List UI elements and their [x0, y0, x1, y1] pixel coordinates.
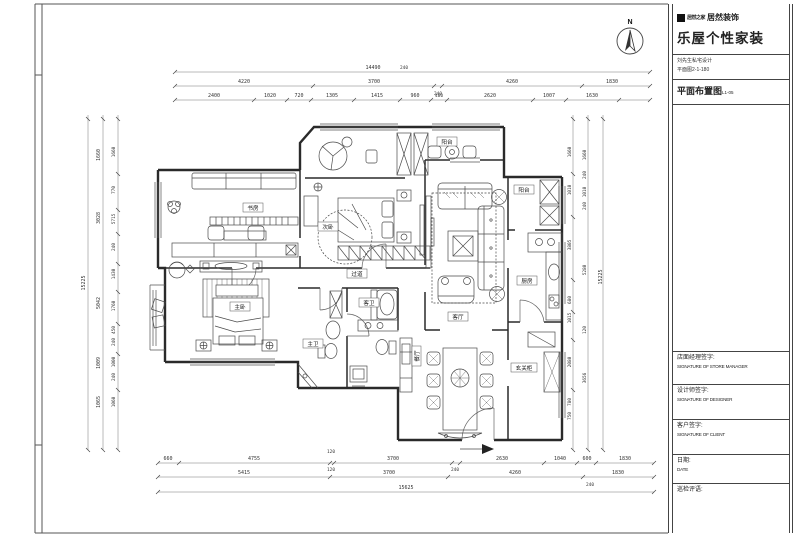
drawing-title-section: 平面布置图L1-05: [673, 80, 789, 105]
dim-texts-bottom: 660 4755 120 120 3700 240 2630 1040 600 …: [163, 449, 631, 491]
bedroom2-tv: [420, 205, 424, 255]
dim-text: 1009: [96, 357, 102, 369]
dim-text: 2080: [567, 356, 573, 367]
signature-client-cn: 客户签字:: [677, 422, 785, 431]
hall-wardrobes: [397, 133, 428, 175]
dim-text: 2400: [208, 93, 220, 99]
room-label-study: 书房: [243, 203, 263, 212]
dim-text: 1415: [371, 93, 383, 99]
outer-walls: [158, 127, 562, 440]
dim-text: 680: [567, 296, 573, 304]
dim-text: 660: [163, 456, 172, 462]
living-sofa-top: [438, 183, 492, 209]
dim-text: 4260: [509, 470, 521, 476]
dim-text: 1065: [96, 396, 102, 408]
drawing-title: 平面布置图: [677, 86, 722, 96]
dim-text: 1010: [582, 186, 588, 197]
dim-text: 240: [111, 373, 117, 381]
dim-texts-left: 15225 1660 3028 5042 1009 1065 1660 770 …: [81, 146, 117, 408]
dim-text: 450: [111, 326, 117, 334]
dim-text: 15625: [398, 485, 413, 491]
dim-text: 14490: [365, 65, 380, 71]
entry-closet: [528, 332, 560, 392]
dining-table: [443, 348, 477, 430]
svg-text:玄关柜: 玄关柜: [516, 364, 533, 372]
living-armchair: [438, 276, 474, 303]
dim-text: 600: [582, 456, 591, 462]
dim-text: 780: [567, 398, 573, 406]
dim-text: 120: [327, 449, 335, 455]
room-label-living: 客厅: [448, 312, 468, 321]
svg-text:餐厅: 餐厅: [413, 350, 421, 362]
project-info-section: 刘先生私宅设计 平面图2-1-180: [673, 55, 789, 80]
drawing-number: L1-05: [722, 90, 734, 95]
svg-text:阳台: 阳台: [518, 186, 530, 194]
dim-text: 1007: [543, 93, 555, 99]
bedroom2-bed: [338, 190, 411, 243]
living-sofa-right: [478, 206, 504, 290]
title-block-empty-area: [673, 105, 789, 352]
signature-client: 客户签字: SIGNATURE OF CLIENT: [673, 420, 789, 455]
svg-text:客卫: 客卫: [363, 299, 375, 307]
dining-sideboard: [400, 338, 412, 392]
brand-logo-icon: [677, 14, 685, 22]
dim-text: 240: [582, 202, 588, 210]
dim-text: 1660: [111, 146, 117, 157]
dim-text: 120: [582, 326, 588, 334]
dim-text: 1010: [567, 184, 573, 195]
dim-text: 1830: [612, 470, 624, 476]
room-label-corridor: 过道: [347, 269, 367, 278]
dim-text: 240: [586, 482, 594, 488]
signature-designer-cn: 设计师签字:: [677, 387, 785, 396]
project-line2: 平面图2-1-180: [677, 66, 785, 75]
dim-text: 1660: [96, 149, 102, 161]
dim-text: 5280: [582, 264, 588, 275]
svg-text:次卧: 次卧: [322, 223, 334, 231]
north-arrow-icon: N: [617, 19, 643, 54]
dim-text: 3028: [96, 212, 102, 224]
study-sofa: [192, 173, 296, 189]
svg-text:阳台: 阳台: [441, 138, 453, 146]
bedroom2-wardrobe: [338, 246, 430, 260]
title-block: 居然之家 居然装饰 乐屋个性家装 刘先生私宅设计 平面图2-1-180 平面布置…: [668, 4, 793, 533]
balcony-south-furniture: [428, 145, 476, 159]
svg-text:厨房: 厨房: [521, 277, 533, 285]
dim-text: 5715: [111, 213, 117, 224]
study-shelf: [210, 217, 298, 240]
dim-text: 480: [435, 93, 443, 99]
dim-text: 4755: [248, 456, 260, 462]
dim-text: 3656: [582, 372, 588, 383]
svg-text:主卫: 主卫: [307, 340, 319, 348]
dim-text: 2620: [484, 93, 496, 99]
dim-text: 120: [327, 467, 335, 473]
dim-text: 5415: [238, 470, 250, 476]
dim-text: 750: [567, 412, 573, 420]
dimension-lines: [88, 72, 654, 492]
room-label-master: 主卧: [230, 302, 250, 311]
room-label-kitchen: 厨房: [517, 276, 537, 285]
room-labels: 书房 次卧 过道 主卧 主卫 客卫 客厅 餐厅: [230, 137, 537, 372]
dim-text: 4220: [238, 79, 250, 85]
room-label-bedroom2: 次卧: [318, 222, 338, 231]
svg-text:过道: 过道: [351, 270, 363, 278]
dim-text: 5042: [96, 297, 102, 309]
dim-text: 240: [582, 171, 588, 179]
title-block-logo-section: 居然之家 居然装饰 乐屋个性家装: [673, 4, 789, 55]
dim-text: 720: [294, 93, 303, 99]
dim-text: 1015: [567, 312, 573, 323]
dim-text: 3700: [383, 470, 395, 476]
study-plant-icon: [168, 201, 181, 214]
dim-text: 960: [410, 93, 419, 99]
brand-logo-bold-text: 居然装饰: [707, 12, 739, 23]
dim-text: 4260: [506, 79, 518, 85]
dining-console: [438, 433, 482, 438]
dim-text: 1020: [264, 93, 276, 99]
dim-text: 1830: [619, 456, 631, 462]
north-label: N: [627, 19, 632, 26]
dim-text: 2630: [496, 456, 508, 462]
dim-texts-top: 14490 240 4220 3700 4260 1830 240 2400 1…: [208, 65, 618, 99]
signature-store-manager: 店面经理签字: SIGNATURE OF STORE MANAGER: [673, 352, 789, 385]
dim-text: 1430: [111, 268, 117, 279]
brand-title: 乐屋个性家装: [677, 27, 785, 47]
brand-logo-small-text: 居然之家: [687, 14, 705, 21]
balcony-lounge-chair: [151, 299, 165, 328]
doors: [232, 244, 544, 440]
dim-text: 1660: [582, 149, 588, 160]
dim-texts-right: 1660 1010 3805 680 1015 2080 780 750 166…: [567, 146, 604, 420]
room-label-balcony-north: 阳台: [514, 185, 534, 194]
dim-text: 1630: [586, 93, 598, 99]
dimension-ticks: [86, 70, 656, 494]
dim-text: 1760: [111, 300, 117, 311]
dim-text: 1830: [606, 79, 618, 85]
dim-text: 770: [111, 186, 117, 194]
laundry-washer: [350, 366, 367, 386]
room-label-entry-cabinet: 玄关柜: [511, 363, 537, 372]
dim-text: 15225: [81, 275, 87, 290]
dim-text: 240: [111, 243, 117, 251]
signature-designer: 设计师签字: SIGNATURE OF DESIGNER: [673, 385, 789, 420]
dim-text: 15225: [598, 269, 604, 284]
entry-step-arrow: [460, 444, 494, 454]
dim-text: 3700: [368, 79, 380, 85]
room-label-guest-bath: 客卫: [359, 298, 379, 307]
date-label-cn: 日期:: [677, 457, 785, 466]
study-desk: [172, 226, 298, 257]
date-label-en: DATE: [677, 466, 785, 474]
drawing-sheet: N 14490 240 4220 3700 4260 1830 240 2: [0, 0, 795, 537]
bedroom2-rug: [318, 210, 372, 264]
dim-text: 3805: [567, 239, 573, 250]
leisure-table-chair: [366, 150, 377, 163]
dim-text: 1305: [326, 93, 338, 99]
signature-store-en: SIGNATURE OF STORE MANAGER: [677, 363, 785, 371]
svg-text:书房: 书房: [247, 204, 259, 212]
dim-text: 240: [451, 467, 459, 473]
dim-text: 1040: [554, 456, 566, 462]
dim-text: 1660: [567, 146, 573, 157]
dim-text: 3700: [387, 456, 399, 462]
dim-text: 1000: [111, 356, 117, 367]
room-label-master-bath: 主卫: [303, 339, 323, 348]
dim-text: 240: [400, 65, 408, 71]
room-label-dining: 餐厅: [412, 346, 421, 366]
svg-text:客厅: 客厅: [452, 313, 464, 321]
bedroom2-cabinet: [304, 183, 322, 226]
signature-designer-en: SIGNATURE OF DESIGNER: [677, 396, 785, 404]
leisure-round-chair: [319, 137, 352, 170]
dim-text: 1060: [111, 396, 117, 407]
review-label: 巡检评语:: [677, 486, 785, 495]
signature-store-cn: 店面经理签字:: [677, 354, 785, 363]
living-rug: [432, 193, 496, 303]
svg-text:主卧: 主卧: [234, 303, 246, 311]
dim-text: 240: [111, 338, 117, 346]
review-section: 巡检评语:: [673, 484, 789, 533]
balcony-north-cabinets: [540, 180, 559, 225]
room-label-balcony-south: 阳台: [437, 137, 457, 146]
study-side-table: [169, 261, 262, 278]
project-line1: 刘先生私宅设计: [677, 57, 785, 66]
signature-client-en: SIGNATURE OF CLIENT: [677, 431, 785, 439]
date-section: 日期: DATE: [673, 455, 789, 484]
